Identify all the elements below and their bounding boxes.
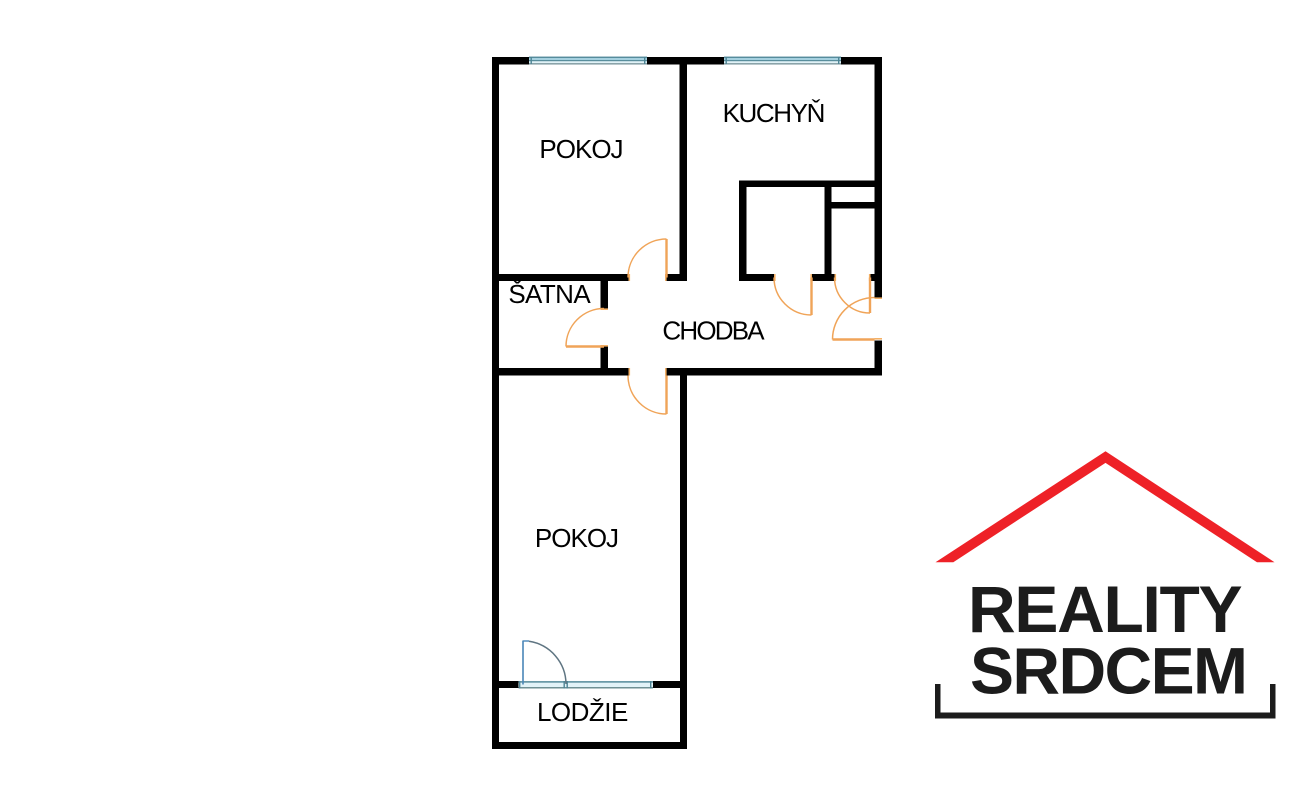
svg-text:CHODBA: CHODBA [662,316,765,346]
svg-text:ŠATNA: ŠATNA [508,279,591,309]
svg-text:KUCHYŇ: KUCHYŇ [723,98,824,128]
svg-text:SRDCEM: SRDCEM [970,634,1246,708]
svg-text:POKOJ: POKOJ [535,523,618,553]
svg-text:POKOJ: POKOJ [539,134,622,164]
svg-text:LODŽIE: LODŽIE [537,697,628,727]
